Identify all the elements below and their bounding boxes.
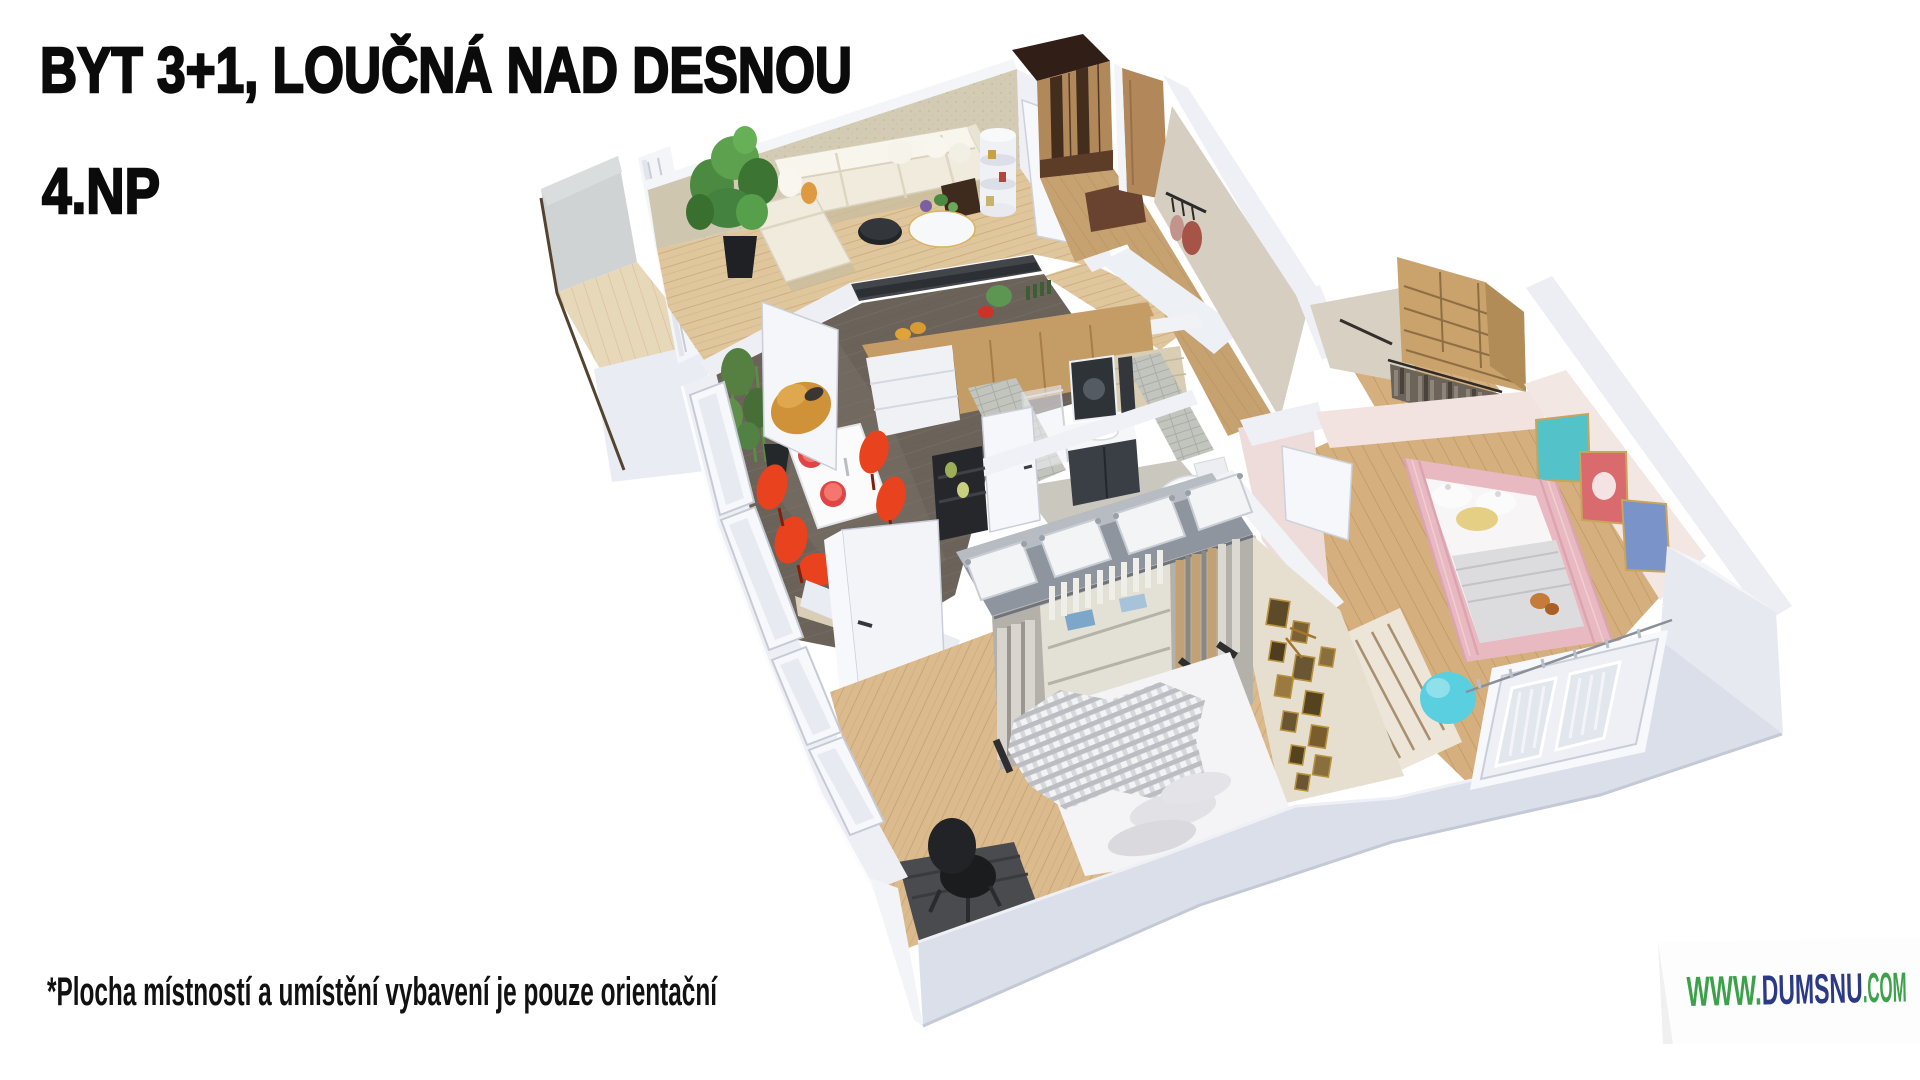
svg-text:4.NP: 4.NP bbox=[42, 155, 160, 227]
svg-text:BYT 3+1, LOUČNÁ NAD DESNOU: BYT 3+1, LOUČNÁ NAD DESNOU bbox=[40, 33, 852, 106]
svg-text:*Plocha místností a umístění v: *Plocha místností a umístění vybavení je… bbox=[47, 970, 718, 1014]
svg-text:WWW.: WWW. bbox=[1686, 966, 1762, 1015]
svg-text:DUMSNU: DUMSNU bbox=[1761, 964, 1863, 1013]
svg-text:.COM: .COM bbox=[1862, 963, 1907, 1011]
